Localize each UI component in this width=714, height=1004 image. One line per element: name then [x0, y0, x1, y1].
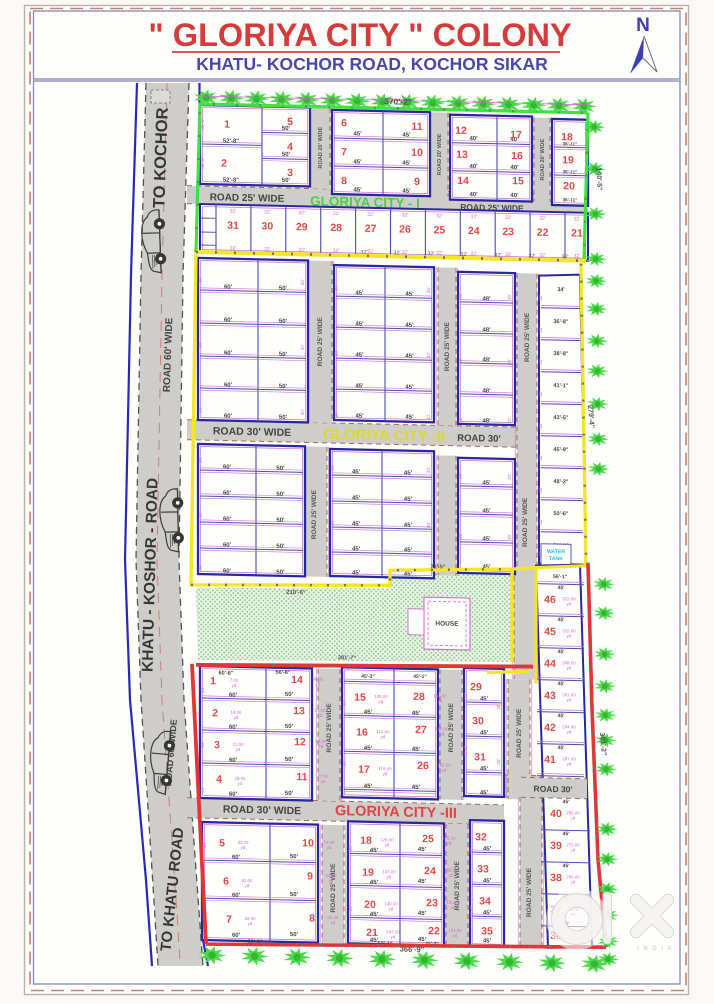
svg-text:I N D I A: I N D I A	[637, 946, 673, 952]
